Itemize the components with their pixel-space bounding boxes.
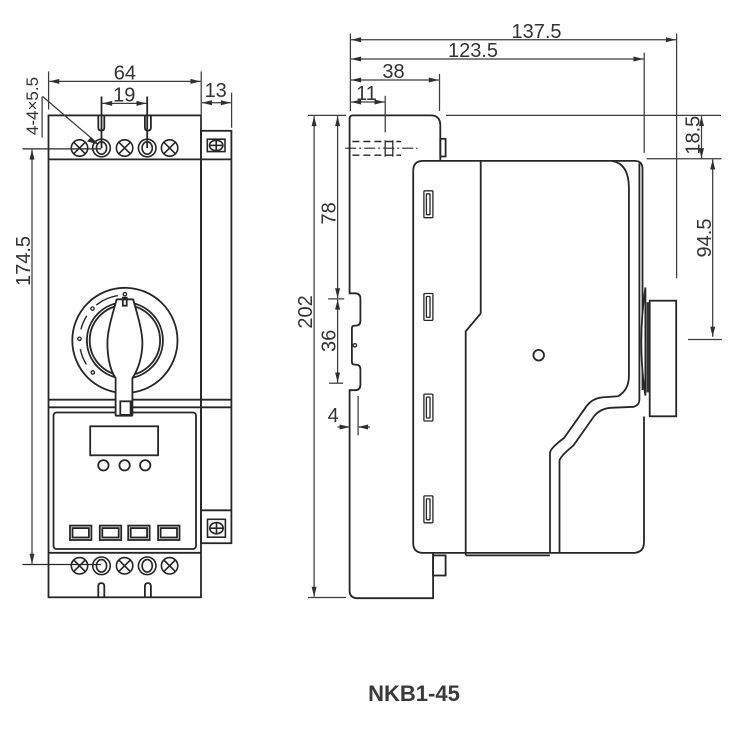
svg-text:123.5: 123.5 (448, 40, 498, 62)
svg-text:78: 78 (319, 202, 341, 224)
svg-text:174.5: 174.5 (13, 236, 35, 286)
svg-text:94.5: 94.5 (694, 219, 716, 258)
svg-text:13: 13 (205, 80, 227, 102)
svg-text:NKB1-45: NKB1-45 (368, 681, 460, 706)
svg-text:4-4×5.5: 4-4×5.5 (23, 77, 42, 135)
svg-text:11: 11 (356, 83, 377, 105)
svg-text:19: 19 (113, 85, 135, 107)
svg-text:4: 4 (328, 405, 339, 427)
svg-text:36: 36 (319, 330, 341, 352)
svg-text:64: 64 (114, 63, 136, 85)
svg-text:38: 38 (382, 61, 404, 83)
svg-text:18.5: 18.5 (683, 116, 705, 155)
svg-text:202: 202 (295, 295, 317, 328)
svg-text:137.5: 137.5 (511, 21, 561, 43)
